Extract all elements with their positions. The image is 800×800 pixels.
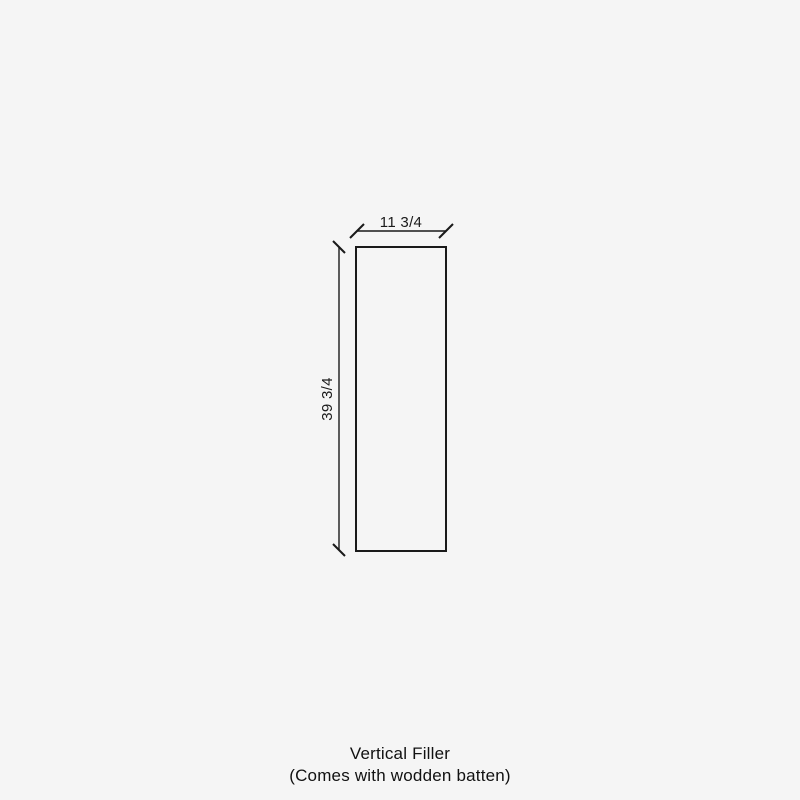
diagram-canvas: 11 3/4 39 3/4 [0, 0, 800, 800]
width-dimension: 11 3/4 [350, 214, 453, 238]
caption-subtitle: (Comes with wodden batten) [0, 765, 800, 787]
caption-title: Vertical Filler [0, 743, 800, 765]
vertical-filler-diagram: 11 3/4 39 3/4 [0, 0, 800, 800]
caption: Vertical Filler (Comes with wodden batte… [0, 743, 800, 787]
height-dimension-label: 39 3/4 [319, 377, 336, 421]
width-dimension-label: 11 3/4 [380, 214, 422, 231]
filler-panel-outline [356, 247, 446, 551]
height-dimension: 39 3/4 [319, 241, 345, 556]
